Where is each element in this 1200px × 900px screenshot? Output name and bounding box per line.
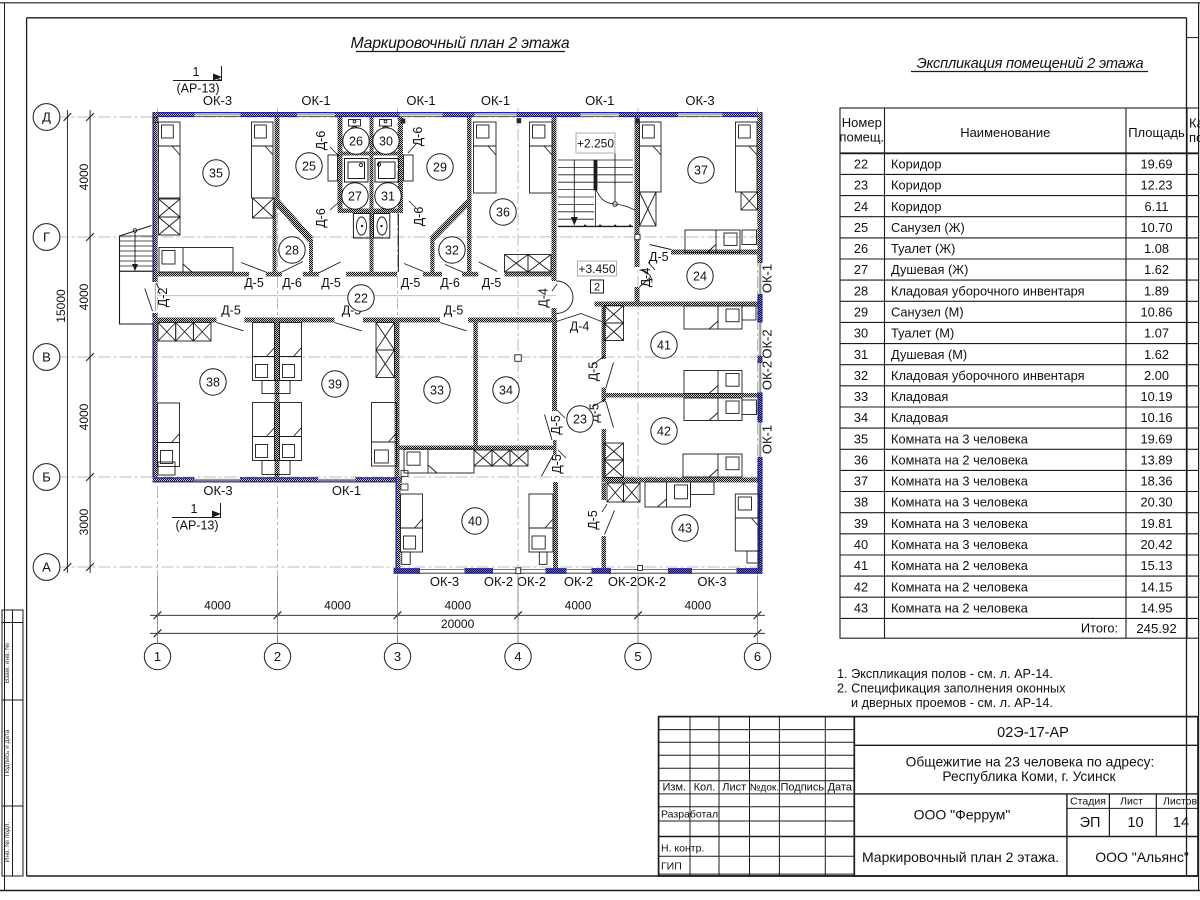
svg-text:32: 32 [854,368,868,383]
svg-text:35: 35 [854,431,868,446]
svg-text:20000: 20000 [441,617,475,631]
svg-text:Душевая (М): Душевая (М) [891,347,967,362]
svg-text:ОК-1: ОК-1 [406,93,435,108]
svg-text:43: 43 [854,600,868,615]
svg-text:37: 37 [854,474,868,489]
svg-text:Д-5: Д-5 [549,415,563,435]
svg-text:20.42: 20.42 [1140,537,1172,552]
svg-text:10.86: 10.86 [1140,304,1172,319]
svg-text:Д-6: Д-6 [314,208,328,228]
svg-text:ОК-1: ОК-1 [760,264,775,293]
svg-text:Д-6: Д-6 [440,276,460,290]
svg-text:Комната на 2 человека: Комната на 2 человека [891,579,1029,594]
svg-text:по: по [1189,130,1200,145]
svg-text:ОК-2: ОК-2 [608,574,637,589]
svg-text:Комната на 2 человека: Комната на 2 человека [891,600,1029,615]
svg-text:Д-5: Д-5 [649,250,669,264]
svg-text:30: 30 [379,134,393,148]
svg-text:Д: Д [42,110,51,125]
svg-text:1: 1 [193,65,200,79]
svg-text:29: 29 [854,304,868,319]
svg-text:Д-5: Д-5 [244,276,264,290]
svg-text:1.62: 1.62 [1144,347,1169,362]
svg-text:№док.: №док. [750,783,779,794]
svg-text:38: 38 [206,375,220,389]
svg-text:42: 42 [657,424,671,438]
svg-text:39: 39 [854,516,868,531]
svg-text:28: 28 [285,243,299,257]
svg-text:4000: 4000 [324,599,351,613]
svg-text:4000: 4000 [204,599,231,613]
svg-text:Маркировочный план 2 этажа: Маркировочный план 2 этажа [351,35,570,52]
svg-text:Д-4: Д-4 [537,288,551,308]
svg-text:24: 24 [854,199,868,214]
svg-text:33: 33 [854,389,868,404]
svg-text:40: 40 [854,537,868,552]
svg-text:ОК-1: ОК-1 [760,425,775,454]
svg-text:Коридор: Коридор [891,157,942,172]
svg-text:Д-5: Д-5 [586,510,600,530]
svg-text:Д-6: Д-6 [411,127,425,147]
svg-text:42: 42 [854,579,868,594]
svg-text:4000: 4000 [565,599,592,613]
svg-text:ЭП: ЭП [1080,815,1101,831]
svg-text:Листов: Листов [1163,796,1198,808]
svg-text:10.19: 10.19 [1140,389,1172,404]
svg-text:26: 26 [349,134,363,148]
svg-text:Лист: Лист [1120,796,1143,808]
svg-text:Санузел (М): Санузел (М) [891,304,964,319]
svg-text:3000: 3000 [77,508,91,535]
svg-text:27: 27 [854,262,868,277]
svg-text:19.81: 19.81 [1140,516,1172,531]
svg-text:1.89: 1.89 [1144,283,1169,298]
svg-text:Д-5: Д-5 [221,304,241,318]
svg-text:ОК-3: ОК-3 [203,483,232,498]
svg-text:ОК-1: ОК-1 [481,93,510,108]
svg-text:Комната на 3 человека: Комната на 3 человека [891,474,1029,489]
svg-text:Экспликация помещений 2 этажа: Экспликация помещений 2 этажа [917,56,1144,72]
svg-text:25: 25 [854,220,868,235]
svg-text:4000: 4000 [77,163,91,190]
svg-text:2: 2 [274,649,281,664]
svg-text:Комната на 3 человека: Комната на 3 человека [891,516,1029,531]
svg-text:13.89: 13.89 [1140,452,1172,467]
svg-text:Д-6: Д-6 [282,276,302,290]
svg-text:02Э-17-АР: 02Э-17-АР [997,725,1069,741]
svg-text:Д-5: Д-5 [587,362,601,382]
svg-text:Общежитие на 23 человека по ад: Общежитие на 23 человека по адресу: [906,755,1155,770]
svg-text:ГИП: ГИП [661,861,682,873]
svg-text:Кол.: Кол. [694,782,716,794]
svg-text:Разработал: Разработал [661,809,718,821]
svg-text:Кладовая: Кладовая [891,410,948,425]
svg-text:1: 1 [191,502,198,516]
svg-text:Взам. инв. №: Взам. инв. № [4,643,11,683]
svg-text:ОК-1: ОК-1 [301,93,330,108]
svg-text:ООО "Феррум": ООО "Феррум" [914,807,1011,823]
svg-text:10.16: 10.16 [1140,410,1172,425]
svg-text:1.07: 1.07 [1144,326,1169,341]
svg-text:1. Экспликация полов - см. л.: 1. Экспликация полов - см. л. АР-14. [837,667,1053,681]
svg-text:ОК-2: ОК-2 [484,574,513,589]
svg-text:Туалет (Ж): Туалет (Ж) [891,241,955,256]
svg-text:Д-5: Д-5 [444,304,464,318]
svg-text:3: 3 [394,649,401,664]
svg-text:37: 37 [694,163,708,177]
svg-text:245.92: 245.92 [1136,621,1176,636]
svg-text:41: 41 [854,558,868,573]
svg-text:ОК-1: ОК-1 [585,93,614,108]
svg-text:19.69: 19.69 [1140,431,1172,446]
svg-text:25: 25 [302,159,316,173]
svg-text:23: 23 [854,178,868,193]
svg-text:39: 39 [328,377,342,391]
svg-text:2: 2 [594,282,600,294]
svg-text:ОК-3: ОК-3 [685,93,714,108]
svg-text:Д-5: Д-5 [401,276,421,290]
svg-text:6: 6 [754,649,761,664]
svg-text:помещ.: помещ. [839,130,884,145]
svg-text:Наименование: Наименование [960,125,1050,140]
svg-text:2.00: 2.00 [1144,368,1169,383]
svg-text:Д-5: Д-5 [482,276,502,290]
svg-text:Д-2: Д-2 [156,288,170,308]
svg-text:1.62: 1.62 [1144,262,1169,277]
svg-text:33: 33 [430,383,444,397]
svg-text:36: 36 [854,452,868,467]
svg-text:ОК-3: ОК-3 [697,574,726,589]
svg-text:Д-5: Д-5 [321,276,341,290]
svg-text:Дата: Дата [828,782,853,794]
svg-text:Подпись: Подпись [781,782,825,794]
svg-text:(АР-13): (АР-13) [176,82,219,96]
svg-text:Д-4: Д-4 [639,268,653,288]
svg-text:Итого:: Итого: [1081,621,1118,636]
svg-text:14.15: 14.15 [1140,579,1172,594]
svg-text:Коридор: Коридор [891,178,942,193]
svg-text:ОК-2: ОК-2 [760,329,775,358]
svg-text:31: 31 [381,189,395,203]
svg-text:34: 34 [499,383,513,397]
svg-text:36: 36 [496,205,510,219]
svg-text:ОК-2: ОК-2 [760,361,775,390]
svg-text:4: 4 [514,649,521,664]
svg-text:31: 31 [854,347,868,362]
svg-text:26: 26 [854,241,868,256]
svg-text:Кладовая уборочного инвентаря: Кладовая уборочного инвентаря [891,368,1085,383]
svg-text:Площадь: Площадь [1128,125,1185,140]
svg-text:Санузел (Ж): Санузел (Ж) [891,220,965,235]
svg-text:22: 22 [854,157,868,172]
svg-text:ОК-2: ОК-2 [564,574,593,589]
svg-text:5: 5 [634,649,641,664]
svg-text:4000: 4000 [77,283,91,310]
svg-text:ОК-2: ОК-2 [517,574,546,589]
svg-text:19.69: 19.69 [1140,157,1172,172]
svg-text:15.13: 15.13 [1140,558,1172,573]
svg-text:Стадия: Стадия [1070,796,1106,808]
svg-text:15000: 15000 [54,289,68,323]
svg-text:Кладовая: Кладовая [891,389,948,404]
svg-text:Номер: Номер [842,115,882,130]
svg-text:4000: 4000 [444,599,471,613]
svg-text:14.95: 14.95 [1140,600,1172,615]
svg-text:Комната на 3 человека: Комната на 3 человека [891,495,1029,510]
svg-text:2. Спецификация заполнения око: 2. Спецификация заполнения оконных [837,682,1066,696]
svg-text:35: 35 [209,166,223,180]
svg-text:Кладовая уборочного инвентаря: Кладовая уборочного инвентаря [891,283,1085,298]
svg-text:Туалет (М): Туалет (М) [891,326,954,341]
svg-text:ОК-2: ОК-2 [637,574,666,589]
svg-text:ОК-3: ОК-3 [430,574,459,589]
svg-text:Комната на 3 человека: Комната на 3 человека [891,537,1029,552]
svg-text:Коридор: Коридор [891,199,942,214]
svg-text:Комната на 3 человека: Комната на 3 человека [891,431,1029,446]
svg-text:А: А [42,560,51,575]
svg-text:22: 22 [354,291,368,305]
svg-text:Ка: Ка [1189,116,1200,131]
svg-text:и дверных проемов - см. л. АР-: и дверных проемов - см. л. АР-14. [851,696,1053,710]
svg-text:32: 32 [445,243,459,257]
svg-text:Комната на 2 человека: Комната на 2 человека [891,452,1029,467]
svg-text:Г: Г [43,230,50,245]
svg-text:29: 29 [433,160,447,174]
svg-text:Инв. № подл.: Инв. № подл. [4,822,11,863]
svg-text:38: 38 [854,495,868,510]
svg-text:24: 24 [693,269,707,283]
svg-text:12.23: 12.23 [1140,178,1172,193]
svg-text:Комната на 2 человека: Комната на 2 человека [891,558,1029,573]
svg-text:28: 28 [854,283,868,298]
svg-text:Изм.: Изм. [663,782,687,794]
svg-text:10.70: 10.70 [1140,220,1172,235]
svg-text:27: 27 [348,189,362,203]
svg-text:10: 10 [1127,815,1143,831]
svg-text:Республика Коми, г. Усинск: Республика Коми, г. Усинск [942,769,1116,784]
svg-text:4000: 4000 [77,403,91,430]
svg-text:ООО "Альянс": ООО "Альянс" [1095,849,1189,865]
svg-text:41: 41 [657,338,671,352]
svg-text:23: 23 [573,412,587,426]
svg-text:Д-5: Д-5 [550,454,564,474]
svg-text:Маркировочный план 2 этажа.: Маркировочный план 2 этажа. [862,849,1059,865]
svg-text:1: 1 [154,649,161,664]
svg-text:Д-6: Д-6 [314,131,328,151]
svg-text:43: 43 [678,521,692,535]
svg-text:4000: 4000 [684,599,711,613]
svg-text:Н. контр.: Н. контр. [661,843,704,855]
svg-text:Лист: Лист [722,782,746,794]
svg-text:20.30: 20.30 [1140,495,1172,510]
svg-text:6.11: 6.11 [1145,199,1169,214]
svg-text:(АР-13): (АР-13) [175,519,218,533]
svg-text:+3.450: +3.450 [578,262,615,276]
svg-text:Д-6: Д-6 [412,207,426,227]
svg-text:1.08: 1.08 [1144,241,1169,256]
svg-text:34: 34 [854,410,868,425]
svg-text:ОК-1: ОК-1 [332,483,361,498]
svg-text:В: В [42,350,51,365]
svg-text:30: 30 [854,326,868,341]
svg-text:18.36: 18.36 [1140,474,1172,489]
svg-text:Душевая (Ж): Душевая (Ж) [891,262,968,277]
svg-text:40: 40 [468,514,482,528]
svg-text:Подпись и дата: Подпись и дата [4,729,11,776]
svg-text:14: 14 [1173,815,1189,831]
svg-text:Б: Б [42,470,51,485]
svg-text:Д-4: Д-4 [570,320,590,334]
svg-text:+2.250: +2.250 [577,137,614,151]
